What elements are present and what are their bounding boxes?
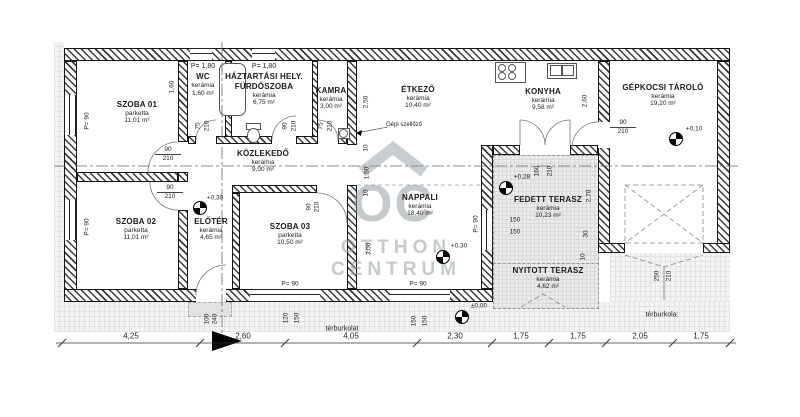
dim-label: 3,00 <box>366 243 373 256</box>
room-label-kozlekedo: KÖZLEKEDŐ kerámia 9,00 m² <box>237 149 289 174</box>
bottom-dim: 4,05 <box>343 332 359 341</box>
dim-label: 150 <box>510 229 521 236</box>
room-label-kamra: KAMRA kerámia 3,00 m² <box>316 86 347 111</box>
level-label-outside: ±0,00 <box>471 303 487 310</box>
bottom-dim: 2,30 <box>447 332 463 341</box>
level-marker-outside <box>455 310 469 324</box>
level-marker-nappali <box>436 250 450 264</box>
dim-label: 210 <box>327 121 334 132</box>
room-label-nappali: NAPPALI kerámia 18,40 m² <box>402 193 438 218</box>
dim-label: 2,50 <box>363 96 370 109</box>
room-label-gepkocsi-tarolo: GÉPKOCSI TÁROLÓ kerámia 19,20 m² <box>622 83 703 108</box>
dim-label: 100 <box>204 314 211 325</box>
dim-label: 90 <box>306 203 313 210</box>
dim-label: 75 <box>318 122 325 129</box>
bottom-dim: 1,75 <box>513 332 529 341</box>
dim-label: 240 <box>212 314 219 325</box>
dim-label: 210 <box>547 166 554 177</box>
vent-leader-arrow <box>356 130 362 136</box>
dim-label: 160 <box>534 166 541 177</box>
room-label-furdoszoba: P= 1,80 HÁZTARTÁSI HELY. FÜRDŐSZOBA kerá… <box>225 63 303 107</box>
dim-label: 210 <box>204 121 211 132</box>
dim-parapet-szoba01: P= 90 <box>84 112 91 129</box>
dim-label: 150 <box>411 316 418 327</box>
paving-label-right: térburkola: <box>645 312 678 319</box>
level-marker-fedett-terasz <box>499 181 513 195</box>
dim-label: 250 <box>654 271 661 282</box>
dim-label: 2,60 <box>582 95 589 108</box>
room-label-szoba02: SZOBA 02 parketta 11,01 m² <box>116 217 156 242</box>
bottom-dim: 2,60 <box>235 332 251 341</box>
dim-label: 210 <box>291 121 298 132</box>
room-label-etkezo: ÉTKEZŐ kerámia 10,40 m² <box>401 85 435 110</box>
dim-label: 10 <box>580 253 587 260</box>
dim-label: 30 <box>583 230 590 237</box>
bottom-dim: 2,05 <box>632 332 648 341</box>
bottom-dim: 4,25 <box>123 332 139 341</box>
level-label-garage: +0,10 <box>686 126 702 133</box>
dim-parapet-szoba03: P= 90 <box>281 281 298 288</box>
room-label-eloter: ELŐTÉR kerámia 4,65 m² <box>194 217 228 242</box>
level-marker-garage <box>669 132 683 146</box>
dim-label: 75 <box>195 122 202 129</box>
level-label-nappali: +0,30 <box>451 243 467 250</box>
floor-plan: OC OTTHON CENTRUM SZOBA 01 parketta 11,0… <box>0 0 800 417</box>
dim-door-szoba01: 90210 <box>155 146 181 164</box>
dim-label: 90 <box>282 122 289 129</box>
room-label-fedett-terasz: FEDETT TERASZ kerámia 10,23 m² <box>514 195 582 220</box>
plan-linework <box>0 0 800 417</box>
room-label-nyitott-terasz: NYITOTT TERASZ kerámia 4,62 m² <box>512 266 583 291</box>
bottom-dim: 1,75 <box>570 332 586 341</box>
room-label-szoba01: SZOBA 01 parketta 11,01 m² <box>117 100 157 125</box>
dim-label: 120 <box>283 313 290 324</box>
dim-parapet-nappali-south: P= 90 <box>409 281 426 288</box>
level-label-eloter: +0,30 <box>207 195 223 202</box>
room-label-konyha: KONYHA kerámia 9,58 m² <box>525 87 561 112</box>
dim-label: 210 <box>666 271 673 282</box>
dim-label: 10 <box>363 144 370 151</box>
dim-label: 150 <box>294 313 301 324</box>
room-label-szoba03: SZOBA 03 parketta 10,50 m² <box>270 222 310 247</box>
room-label-wc: P= 1,80 WC kerámia 1,60 m² <box>191 63 215 98</box>
bottom-dim: 1,75 <box>693 332 709 341</box>
dim-parapet-nappali-east: P= 90 <box>473 215 480 232</box>
dim-door-szoba02: 90210 <box>157 184 183 202</box>
dim-label: 1,50 <box>364 167 371 180</box>
vent-annotation: Gépi szellőző <box>386 122 422 128</box>
level-label-fedett-terasz: +0,28 <box>514 174 530 181</box>
dim-parapet-szoba02: P= 90 <box>84 218 91 235</box>
level-marker-eloter <box>193 201 207 215</box>
dim-door-garage: 90210 <box>610 119 636 137</box>
dim-label: 150 <box>422 316 429 327</box>
dim-label: 2,70 <box>586 190 593 203</box>
dim-label: 10 <box>363 189 370 196</box>
dim-label: 150 <box>510 217 521 224</box>
dim-label: 1,60 <box>169 81 176 94</box>
dim-label: 210 <box>314 202 321 213</box>
